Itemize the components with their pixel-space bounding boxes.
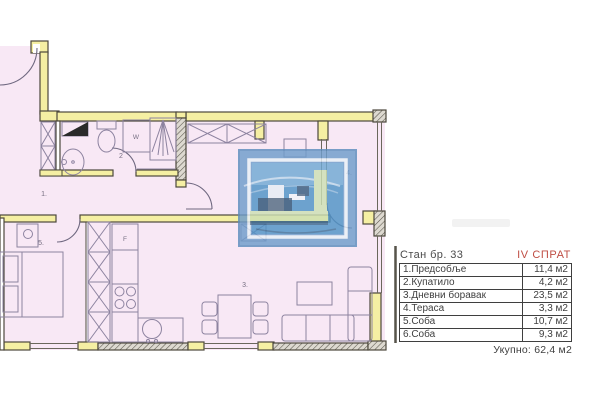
room-name: 1.Предсобље [400,264,523,277]
faded-logo-remnant [452,219,510,227]
floor-label: IV СПРАТ [517,249,571,261]
room-area: 10,7 м2 [523,316,572,329]
info-header: Стан бр. 33 IV СПРАТ [400,249,571,261]
total-label: Укупно: [493,344,531,356]
table-row: 5.Соба 10,7 м2 [400,316,572,329]
room-name: 3.Дневни боравак [400,290,523,303]
room-area: 9,3 м2 [523,329,572,342]
room-area-table: 1.Предсобље 11,4 м2 2.Купатило 4,2 м2 3.… [399,263,572,342]
room-area: 23,5 м2 [523,290,572,303]
table-row: 3.Дневни боравак 23,5 м2 [400,290,572,303]
room-label-bedroom: 5. [38,240,44,247]
total-area: Укупно: 62,4 м2 [399,344,572,356]
room-area: 4,2 м2 [523,277,572,290]
room-label-bath: 2 [119,153,123,160]
apartment-info-panel: Стан бр. 33 IV СПРАТ 1.Предсобље 11,4 м2… [399,249,572,356]
room-area: 11,4 м2 [523,264,572,277]
table-row: 1.Предсобље 11,4 м2 [400,264,572,277]
room-label-hall: 1. [41,191,47,198]
room-name: 6.Соба [400,329,523,342]
developer-watermark [239,150,356,246]
room-label-living: 3. [242,282,248,289]
total-value: 62,4 м2 [534,344,572,356]
room-name: 4.Тераса [400,303,523,316]
table-row: 6.Соба 9,3 м2 [400,329,572,342]
apartment-title: Стан бр. 33 [400,249,463,261]
floor-plan-page: 1. 2 3. 4. 5. W F [0,0,600,400]
room-name: 2.Купатило [400,277,523,290]
table-row: 4.Тераса 3,3 м2 [400,303,572,316]
washer-label: W [133,134,140,141]
fridge-label: F [123,236,127,243]
room-name: 5.Соба [400,316,523,329]
room-area: 3,3 м2 [523,303,572,316]
table-row: 2.Купатило 4,2 м2 [400,277,572,290]
